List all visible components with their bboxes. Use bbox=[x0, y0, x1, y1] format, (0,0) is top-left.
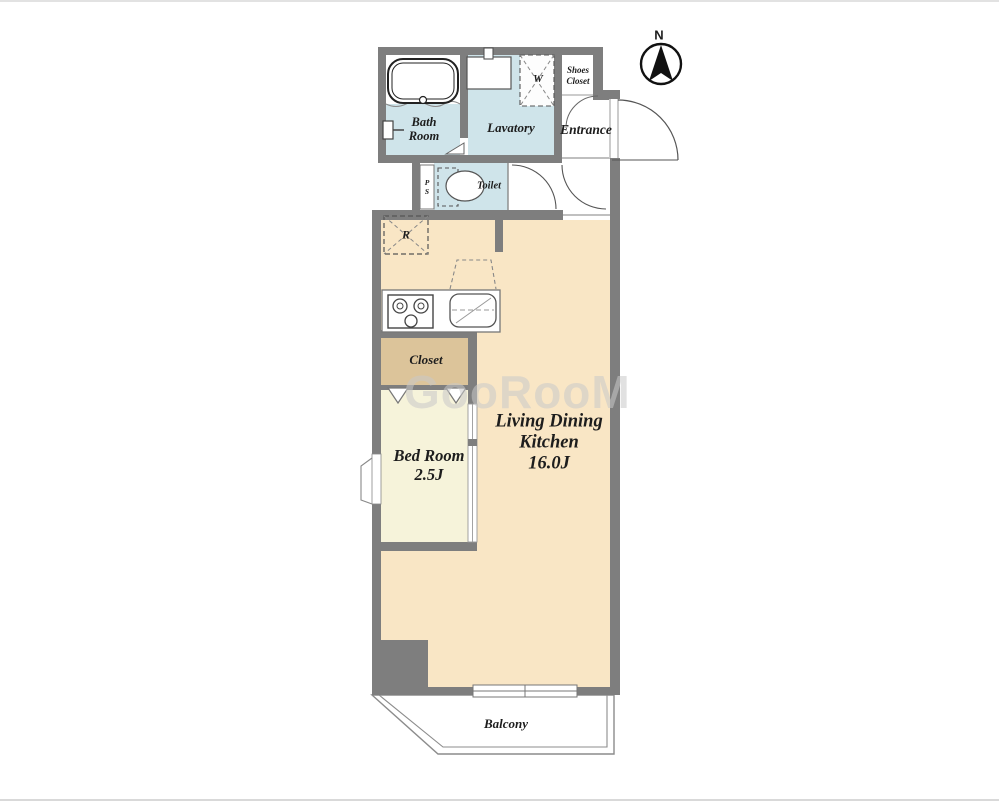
bedroom-sliding-door-stub bbox=[468, 439, 477, 446]
ldk-size: 16.0J bbox=[495, 454, 602, 475]
refrigerator-label: R bbox=[402, 228, 410, 243]
hall-floor bbox=[508, 163, 610, 210]
pipe-space-label-line1: P bbox=[425, 178, 430, 187]
lavatory-sink-icon bbox=[467, 57, 511, 89]
entrance-label: Entrance bbox=[560, 122, 612, 138]
bedroom-size: 2.5J bbox=[393, 465, 464, 484]
ldk-name-line1: Living Dining bbox=[495, 412, 602, 433]
closet-label: Closet bbox=[409, 352, 442, 368]
wall-kitchen-stub bbox=[495, 216, 503, 252]
wall-entrance-jut bbox=[593, 90, 620, 100]
wall-right-main bbox=[610, 157, 620, 695]
wall-bedroom-bottom bbox=[372, 542, 477, 551]
floor-plan-canvas: GooRooM Bath Room Lavatory Shoes Closet … bbox=[0, 0, 999, 801]
wall-ldk-corner-notch bbox=[381, 640, 428, 687]
lavatory-label: Lavatory bbox=[487, 120, 535, 136]
north-label: N bbox=[654, 28, 663, 43]
pipe-space-label: P S bbox=[425, 178, 430, 196]
wall-left-bath bbox=[378, 47, 386, 163]
north-arrow bbox=[641, 44, 681, 84]
ldk-label: Living Dining Kitchen 16.0J bbox=[495, 412, 602, 475]
balcony-label: Balcony bbox=[484, 716, 528, 732]
wall-left-main bbox=[372, 210, 381, 695]
shoes-closet-label-line1: Shoes bbox=[566, 65, 589, 76]
wall-shoes-closet-right bbox=[593, 47, 603, 94]
entrance-door-swing-arc bbox=[618, 100, 678, 160]
bedroom-window-flap bbox=[361, 458, 372, 504]
north-arrow-needle bbox=[649, 45, 673, 81]
shoes-closet-label-line2: Closet bbox=[566, 76, 589, 87]
ldk-name-line2: Kitchen bbox=[495, 433, 602, 454]
wall-lavatory-entrance bbox=[554, 47, 562, 163]
wall-ldk-top bbox=[372, 210, 563, 220]
toilet-label: Toilet bbox=[477, 181, 501, 192]
bathroom-label: Bath Room bbox=[409, 115, 440, 143]
shoes-closet-label: Shoes Closet bbox=[566, 65, 589, 87]
wall-bath-bottom bbox=[378, 155, 562, 163]
bedroom-window bbox=[372, 454, 381, 504]
bedroom-name: Bed Room bbox=[393, 446, 464, 465]
lavatory-faucet-icon bbox=[484, 48, 493, 59]
pipe-space-label-line2: S bbox=[425, 187, 430, 196]
bathroom-label-line2: Room bbox=[409, 129, 440, 143]
shower-fixture-icon bbox=[383, 121, 393, 139]
bathroom-label-line1: Bath bbox=[409, 115, 440, 129]
bedroom-label: Bed Room 2.5J bbox=[393, 446, 464, 484]
washer-label: W bbox=[533, 73, 543, 85]
bathtub-drain-icon bbox=[420, 97, 427, 104]
